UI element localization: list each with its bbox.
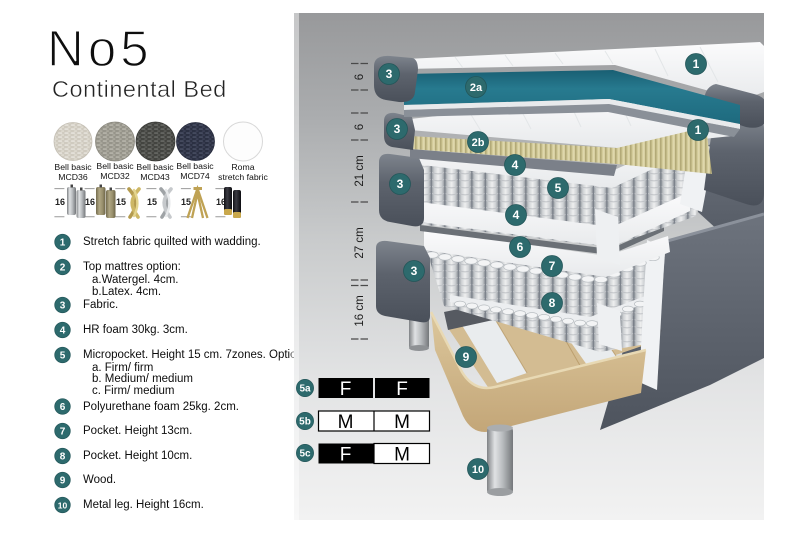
svg-text:8: 8 [549,296,556,310]
svg-text:F: F [396,379,408,400]
svg-text:3: 3 [397,177,404,191]
svg-text:6: 6 [517,240,524,254]
svg-text:3: 3 [60,301,66,312]
svg-text:9: 9 [60,476,66,487]
svg-text:16 cm: 16 cm [354,295,366,326]
svg-text:M: M [338,412,354,433]
svg-text:1: 1 [60,238,66,249]
svg-text:3: 3 [411,264,418,278]
svg-text:2b: 2b [472,137,485,149]
svg-text:10: 10 [58,501,68,511]
svg-text:9: 9 [463,350,470,364]
svg-text:6: 6 [354,124,366,130]
svg-text:M: M [394,445,410,466]
svg-text:6: 6 [354,74,366,80]
svg-text:15: 15 [116,197,126,207]
svg-text:5: 5 [555,181,562,195]
svg-text:7: 7 [60,427,66,438]
svg-text:6: 6 [60,402,66,413]
svg-text:10: 10 [472,464,484,476]
svg-text:5: 5 [60,351,66,362]
svg-text:F: F [340,445,352,466]
svg-text:27 cm: 27 cm [354,227,366,258]
svg-text:21 cm: 21 cm [354,155,366,186]
svg-text:7: 7 [549,259,556,273]
svg-text:5a: 5a [299,384,311,395]
svg-text:1: 1 [693,57,700,71]
svg-text:4: 4 [512,158,519,172]
svg-text:4: 4 [60,326,66,337]
svg-text:2: 2 [60,263,66,274]
svg-text:3: 3 [386,67,393,81]
svg-text:F: F [340,379,352,400]
svg-text:4: 4 [513,208,520,222]
svg-text:2a: 2a [470,82,483,94]
svg-text:15: 15 [181,197,191,207]
svg-text:5c: 5c [299,449,311,460]
svg-text:M: M [394,412,410,433]
svg-text:16: 16 [85,197,95,207]
svg-text:3: 3 [394,122,401,136]
svg-text:5b: 5b [299,417,311,428]
svg-text:1: 1 [695,123,702,137]
svg-text:16: 16 [55,197,65,207]
svg-text:8: 8 [60,452,66,463]
svg-text:15: 15 [147,197,157,207]
